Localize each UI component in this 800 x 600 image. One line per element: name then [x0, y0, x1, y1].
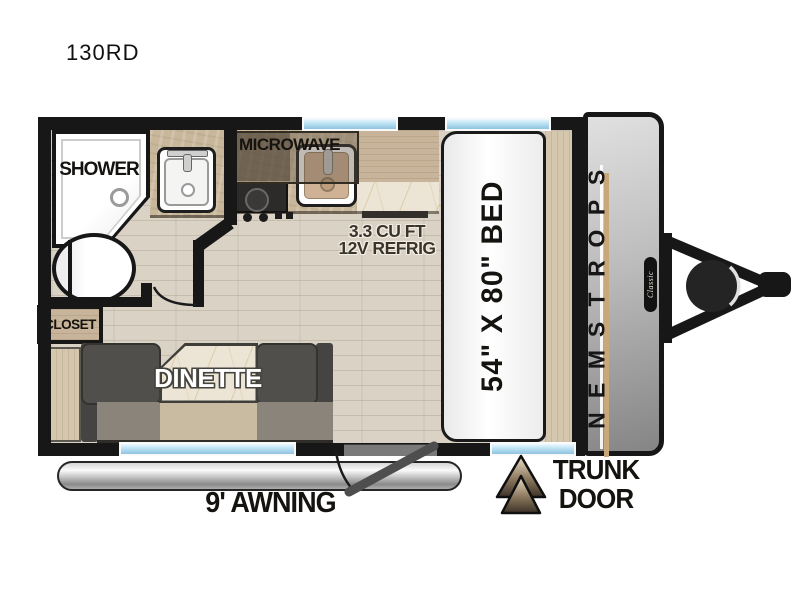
brand-letter: O: [583, 226, 612, 250]
refrigerator-vent: [362, 211, 428, 218]
brand-letter: S: [583, 317, 612, 341]
hitch-frame-top: [665, 240, 766, 283]
brand-letter: N: [583, 409, 612, 433]
brand-letter: S: [583, 166, 612, 190]
microwave-label: MICROWAVE: [239, 135, 340, 155]
wall-bath-kitchen: [224, 130, 237, 225]
microwave-overlay: MICROWAVE: [231, 131, 359, 184]
wall-bath-lower: [193, 240, 204, 307]
brand-letter: T: [583, 287, 612, 311]
model-label: 130RD: [66, 40, 139, 66]
bed-label: 54" X 80" BED: [473, 144, 513, 429]
brand-letter: R: [583, 257, 612, 281]
window-top-bed: [445, 117, 551, 131]
kitchen-counter-marble: [357, 182, 439, 214]
wall-door-jamb: [141, 283, 152, 307]
bathroom-sink: [157, 147, 216, 213]
hitch-frame-bottom: [665, 289, 766, 336]
trunk-door-label: TRUNK DOOR: [545, 455, 647, 513]
refrigerator-label: 3.3 CU FT 12V REFRIG: [334, 223, 440, 257]
brand-letter: M: [583, 348, 612, 372]
shower-label: SHOWER: [56, 159, 142, 181]
brand-text: SPORTSMEN: [585, 163, 609, 435]
trunk-door-arrow-icon: [497, 456, 545, 497]
stove-knob: [275, 212, 282, 219]
window-top-kitchen: [302, 117, 398, 131]
stove-knob: [286, 212, 293, 219]
classic-badge: Classic: [644, 257, 657, 312]
shower-drain-icon: [110, 188, 129, 207]
awning-label: 9' AWNING: [157, 487, 385, 520]
trunk-door-arrow-icon: [502, 476, 540, 513]
refrigerator-cabinet: [357, 130, 439, 182]
bed-headboard: [545, 131, 574, 443]
burner-icon: [245, 188, 269, 212]
toilet: [52, 233, 136, 304]
window-bottom-dinette: [119, 442, 296, 456]
brand-letter: E: [583, 378, 612, 402]
classic-badge-text: Classic: [646, 271, 655, 298]
dinette-base: [97, 402, 333, 443]
entry-door: [344, 444, 437, 456]
propane-tank-highlight: [730, 267, 739, 305]
stove-knob: [259, 213, 268, 222]
propane-tank-icon: [686, 260, 738, 312]
hitch-coupler: [758, 272, 791, 297]
wall-left: [38, 117, 51, 456]
stove: [235, 182, 288, 213]
brand-letter: P: [583, 196, 612, 220]
front-cap: SPORTSMEN Classic: [583, 112, 664, 456]
wall-bath-bottom: [51, 297, 148, 307]
dinette-label: DINETTE: [138, 363, 278, 394]
drain-icon: [181, 183, 195, 197]
floorplan-130rd: 130RD SHOWER CLOSET DINETTE: [0, 0, 800, 600]
stove-knob: [243, 213, 252, 222]
